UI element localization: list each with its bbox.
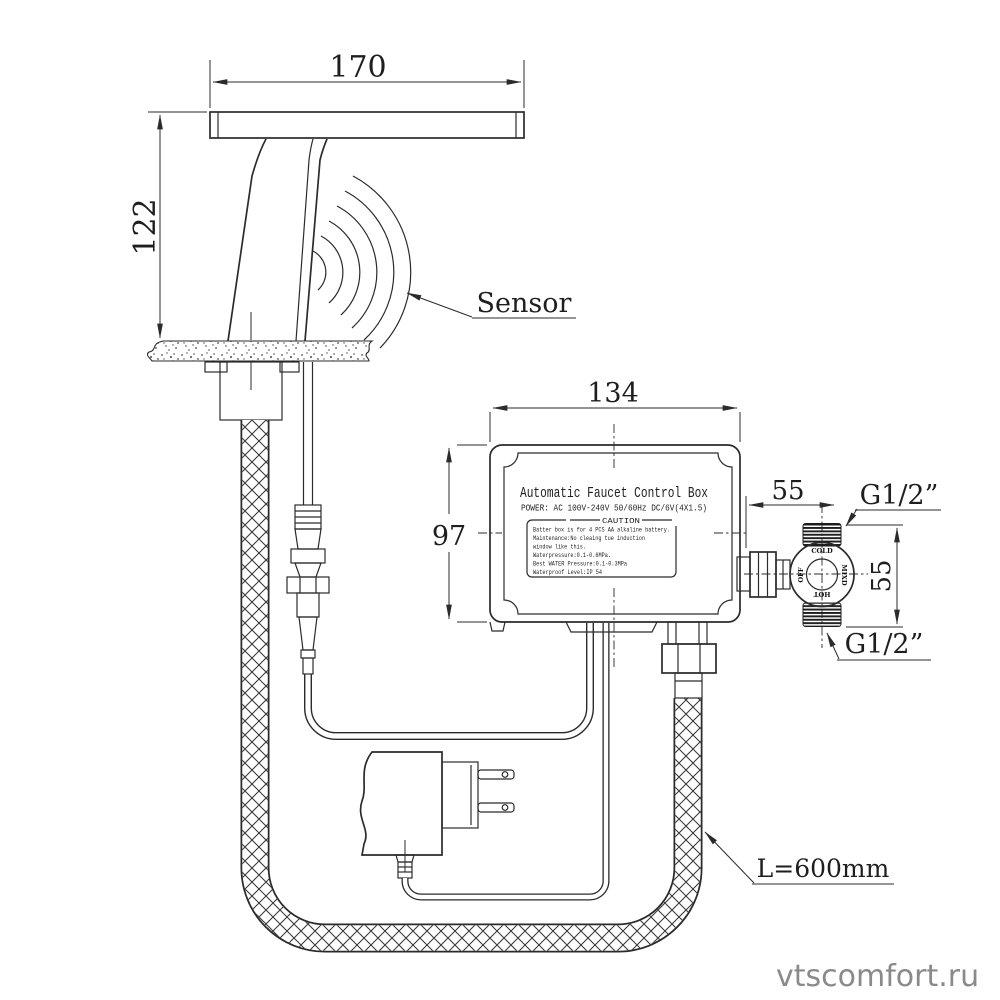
sensor-label: Sensor <box>477 288 572 319</box>
faucet-body <box>228 139 327 341</box>
hose-length-label: L=600mm <box>757 854 890 883</box>
control-box-title: Automatic Faucet Control Box <box>520 485 708 502</box>
dim-55v-label: 55 <box>867 559 897 592</box>
dim-55h-label: 55 <box>771 476 804 506</box>
faucet-spout <box>210 112 524 138</box>
sensor-callout: Sensor <box>407 288 576 319</box>
thread-callout-top: G1/2” <box>846 480 941 526</box>
caution-line-5: Best WATER Pressure:0.1-0.3MPa <box>533 561 627 568</box>
valve-port-off: OFF <box>797 567 805 582</box>
faucet-installation-diagram: Sensor 170 122 <box>0 0 1000 1000</box>
sensor-waves <box>313 176 411 348</box>
control-box: Automatic Faucet Control Box POWER: AC 1… <box>478 424 746 668</box>
dim-97-label: 97 <box>432 521 466 552</box>
adapter-cable <box>405 623 606 897</box>
valve-port-mixd: MIXD <box>840 564 848 585</box>
faucet-shank <box>205 362 299 420</box>
watermark: vtscomfort.ru <box>776 959 979 994</box>
hose-fitting <box>662 622 716 698</box>
valve-port-hot: HOT <box>813 590 830 598</box>
caution-line-1: Batter box is for 4 PCS AA alkaline batt… <box>533 527 670 534</box>
caution-title: CAUTION <box>602 518 640 526</box>
mixing-valve: COLD OFF HOT MIXD <box>737 504 868 648</box>
dimension-box-height: 97 <box>428 445 487 622</box>
caution-line-4: Waterpressure:0.1-0.6MPa. <box>533 552 611 559</box>
dim-122-label: 122 <box>128 198 163 255</box>
dim-170-label: 170 <box>329 50 386 85</box>
plug-prong-top <box>478 770 514 779</box>
caution-line-3: window like this. <box>533 544 586 551</box>
dim-134-label: 134 <box>587 378 639 409</box>
thread-top-label: G1/2” <box>860 480 939 511</box>
plug-prong-bottom <box>478 803 514 812</box>
dimension-faucet-height: 122 <box>128 112 207 338</box>
hose-length-callout: L=600mm <box>705 832 894 884</box>
thread-callout-bottom: G1/2” <box>827 629 931 660</box>
caution-line-6: Waterproof Level:IP 54 <box>533 569 602 576</box>
control-box-power: POWER: AC 100V-240V 50/60Hz DC/6V(4X1.5) <box>521 503 707 514</box>
caution-panel: CAUTION Batter box is for 4 PCS AA alkal… <box>527 514 678 577</box>
countertop <box>147 341 372 361</box>
dimension-spout-width: 170 <box>210 50 524 108</box>
thread-bottom-label: G1/2” <box>845 629 924 660</box>
power-adapter <box>361 752 514 878</box>
technical-drawing-page: Sensor 170 122 <box>0 0 1000 1000</box>
cable-connector <box>287 505 329 674</box>
caution-line-2: Maintenance:No cleaing tue induction <box>533 535 645 542</box>
valve-port-cold: COLD <box>811 547 833 555</box>
dimension-box-width: 134 <box>490 378 740 442</box>
